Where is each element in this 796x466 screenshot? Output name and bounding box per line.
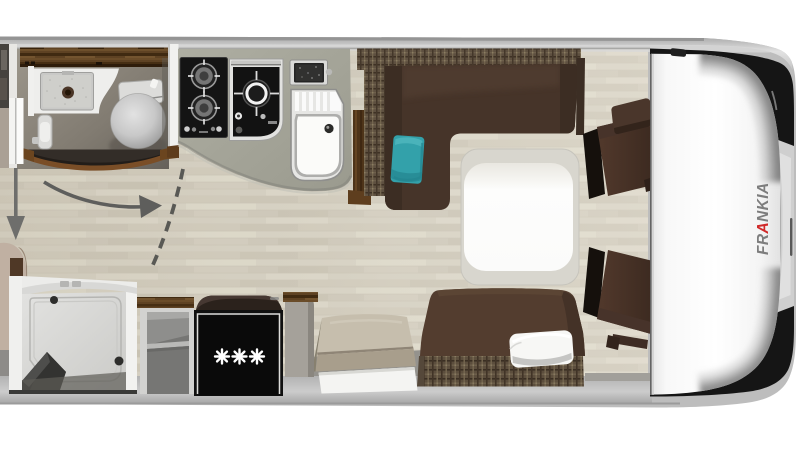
- svg-text:FRANKIA: FRANKIA: [755, 182, 772, 255]
